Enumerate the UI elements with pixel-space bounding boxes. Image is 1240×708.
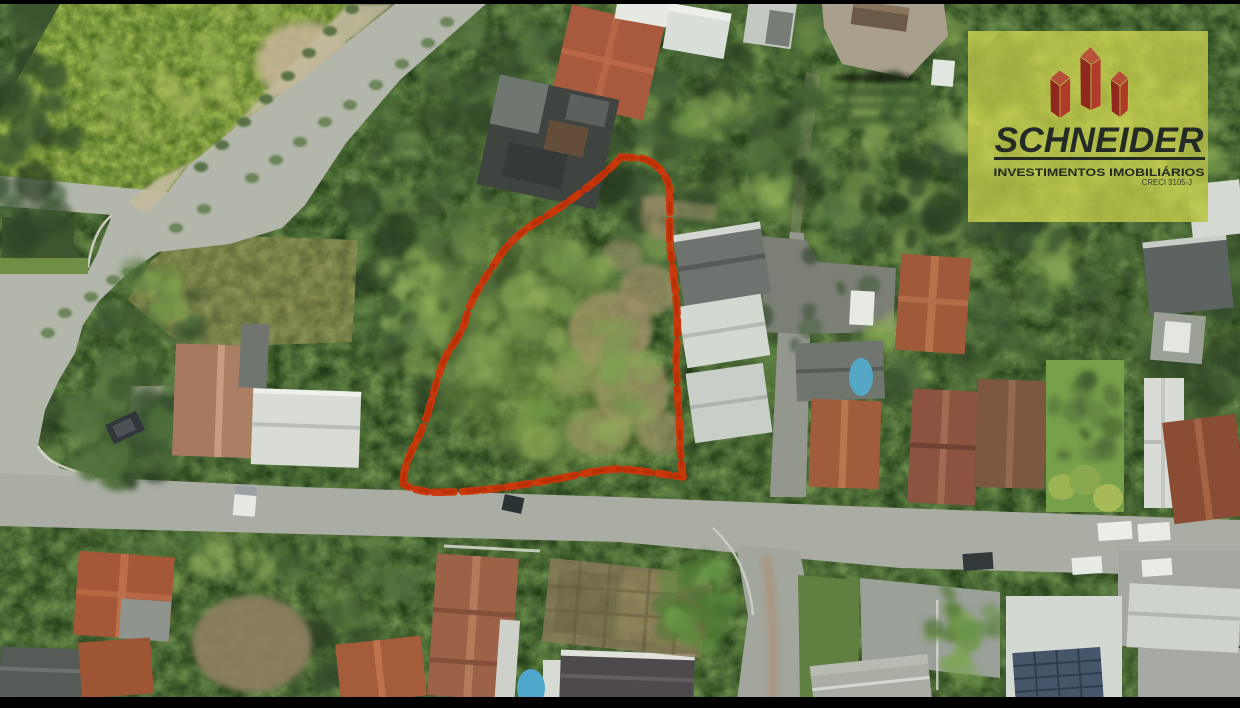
svg-text:CRECI 3105-J: CRECI 3105-J [1142,178,1192,187]
svg-text:SCHNEIDER: SCHNEIDER [995,120,1204,160]
